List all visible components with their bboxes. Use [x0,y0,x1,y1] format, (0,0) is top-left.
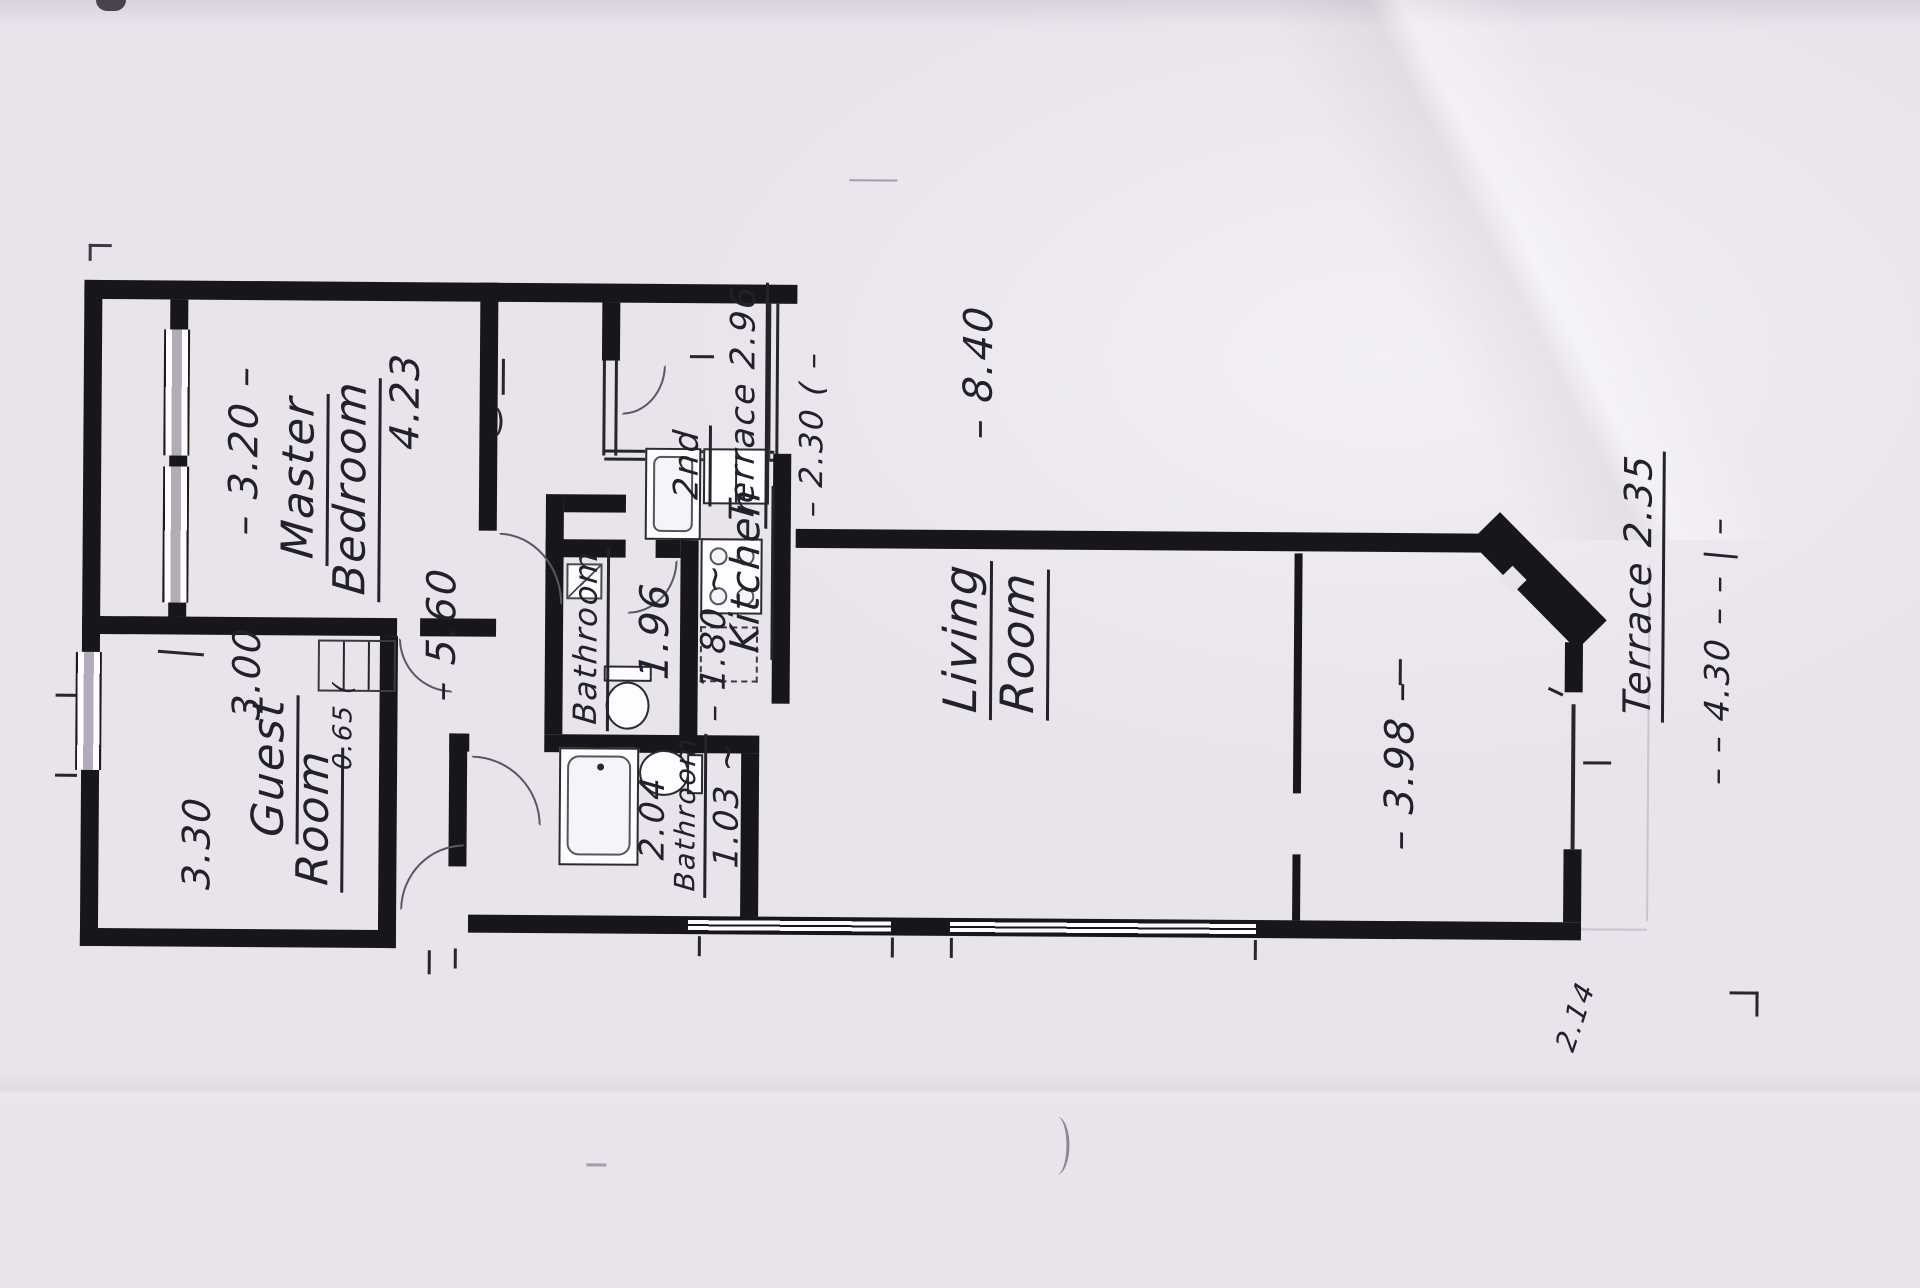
tick-chamfer [1548,687,1564,697]
annotation-dim-2-30: – 2.30 ( – [792,349,831,519]
tick-master-2 [481,405,502,439]
window-bottom-1 [688,917,891,934]
tick-master-1 [502,359,505,395]
toilet1-bowl [605,682,649,730]
window-master-2 [162,466,189,602]
wall-bath1-top-right [656,540,681,558]
wall-living-terrace-divider-lower [1292,854,1300,920]
terrace2-rail-right2 [775,304,779,462]
scanned-floor-plan-photo: { "document": { "kind": "hand-drawn apar… [0,0,1920,1281]
annotation-label-bathroom-2: Bathroom [668,730,707,898]
tick-bottom-1 [698,936,701,956]
stray-mark-top [849,179,897,181]
wall-master-left-stub1 [170,299,188,329]
window-master-1 [163,329,190,455]
tick-left-window-1 [56,694,78,697]
annotation-dim-1-03: 1.03 ~ [706,739,747,870]
wall-terrace2-stub [602,302,620,360]
wall-master-left-stub2 [169,455,187,466]
wall-living-right-lower [1563,849,1582,922]
tick-bottom-4 [1254,940,1257,960]
door-arc-bathroom2 [471,756,541,826]
annotation-label-terrace: Terrace 2.35 [1615,447,1666,723]
wall-living-terrace-divider-upper [1293,553,1303,793]
terrace-railing-bottom [1581,928,1647,930]
corner-mark-top-left [89,244,112,261]
tick-entrance-2 [454,948,457,968]
corner-mark-bottom-right [1729,991,1758,1016]
annotation-dim-8-40: – 8.40 [955,303,1002,441]
wall-living-right-upper [1565,642,1583,692]
terrace2-window-line1 [602,361,606,456]
wall-hall-right-upper [544,494,564,734]
closet-line2 [368,642,370,690]
floor-plan: – 3.20 –MasterBedroom4.233.00GuestRoom3.… [0,0,1920,1288]
wall-step [564,494,626,512]
wall-chamfer-corner [1470,512,1607,650]
tick-bottom-2 [891,938,894,958]
stray-mark-bottom-curve [1044,1117,1069,1175]
window-guest-left [75,652,102,770]
annotation-label-master: Master [273,389,330,567]
annotation-dim-1-96: 1.96 [632,580,679,681]
wall-top [84,280,797,304]
tick-entrance-1 [428,950,431,974]
window-bottom-2 [950,919,1256,937]
tick-terrace2 [690,355,714,358]
annotation-label-living-room: Room [990,564,1050,721]
wall-master-left-stub3 [168,602,186,616]
annotation-dim-2-04: 2.04 [632,774,673,861]
wall-left-lower [80,770,99,946]
wall-left-upper [82,280,103,652]
terrace2-window-line2 [614,361,618,456]
tick-guest-top [158,650,204,657]
tick-bottom-3 [950,938,953,958]
annotation-dim-4-23: 4.23 [382,350,429,451]
stray-mark-bottom-left [586,1163,606,1166]
tick-left-window-2 [55,774,77,777]
annotation-label-living: Living [933,556,993,720]
annotation-dim-3-30: 3.30 [174,794,219,891]
tick-terrace-door [1583,761,1611,764]
wall-living-top [796,529,1481,553]
annotation-dim-3-20: – 3.20 – [221,363,268,538]
annotation-dim-2-14: 2.14 [1549,976,1602,1056]
wall-guest-bottom [80,928,396,948]
annotation-label-2nd: 2nd [666,422,712,507]
bathtub-drain [597,763,604,770]
annotation-dim-0-65: 0.65 ( [328,680,359,771]
annotation-dim-3-98: – 3.98 – [1377,678,1424,853]
annotation-label-bathroom-1: Bathroom [566,543,610,731]
window-living-right [1571,704,1576,849]
door-arc-entrance [400,844,464,910]
annotation-label-kitchen: Kitchen [722,481,774,660]
annotation-dim-5-60: – 5.60 [419,565,466,703]
door-arc-terrace2 [622,365,666,415]
annotation-label-bedroom: Bedroom [324,373,382,602]
annotation-dim-4-30: – – 4.30 – – | – [1697,514,1739,787]
